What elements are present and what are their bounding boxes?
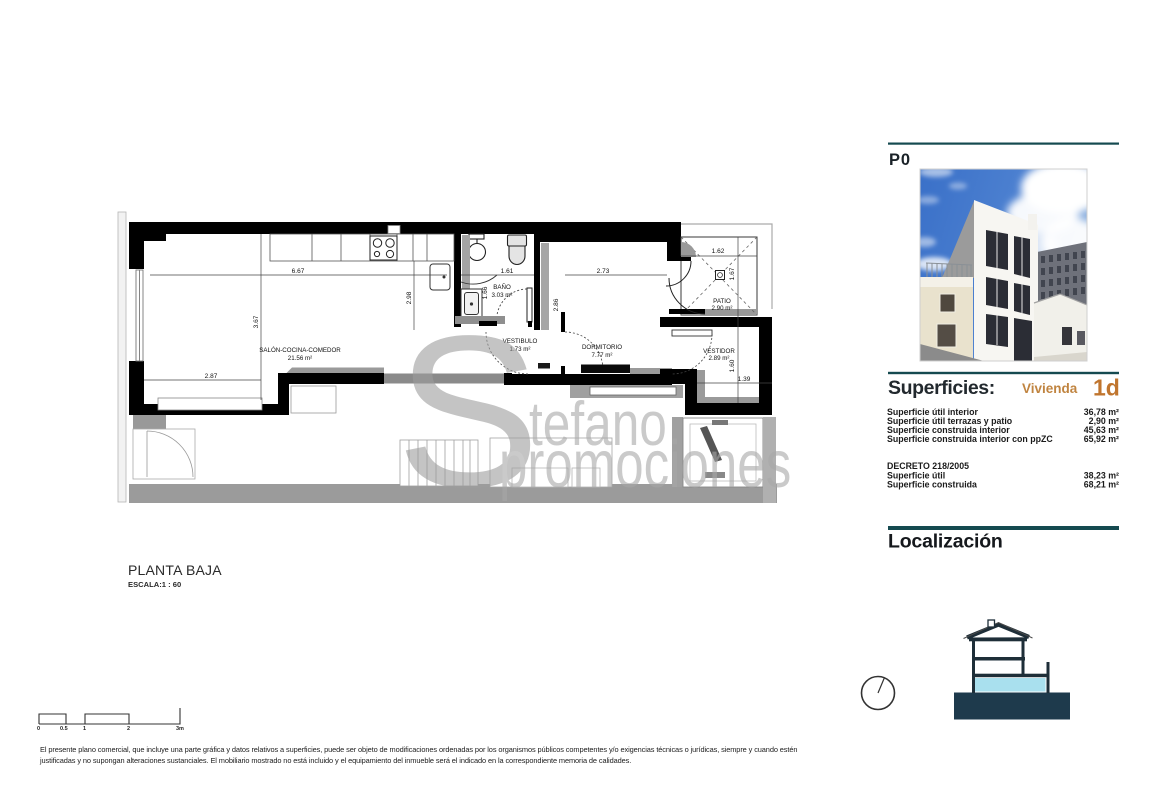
svg-text:2.89 m²: 2.89 m²: [709, 355, 730, 362]
svg-text:promociones: promociones: [499, 426, 791, 501]
svg-text:SALÓN-COCINA-COMEDOR: SALÓN-COCINA-COMEDOR: [259, 347, 341, 354]
svg-text:1.67: 1.67: [729, 267, 736, 280]
svg-text:3m: 3m: [176, 726, 184, 732]
svg-text:1d: 1d: [1093, 375, 1120, 401]
svg-text:2.87: 2.87: [205, 373, 218, 380]
svg-text:Superficie construida interior: Superficie construida interior con ppZC: [887, 434, 1053, 444]
svg-text:ESCALA:1 : 60: ESCALA:1 : 60: [128, 580, 181, 589]
svg-text:DORMITORIO: DORMITORIO: [582, 344, 622, 351]
svg-text:2.73: 2.73: [597, 268, 610, 275]
svg-text:7.77 m²: 7.77 m²: [592, 352, 613, 359]
svg-text:PATIO: PATIO: [713, 298, 731, 305]
svg-text:1.62: 1.62: [712, 248, 725, 255]
svg-text:0: 0: [37, 726, 40, 732]
svg-text:68,21 m²: 68,21 m²: [1084, 480, 1119, 490]
svg-text:2: 2: [127, 726, 130, 732]
svg-text:1.60: 1.60: [729, 359, 736, 372]
svg-text:1.61: 1.61: [501, 268, 514, 275]
svg-text:1.39: 1.39: [738, 376, 751, 383]
svg-text:1: 1: [83, 726, 86, 732]
svg-text:2.86: 2.86: [553, 298, 560, 311]
svg-text:65,92 m²: 65,92 m²: [1084, 434, 1119, 444]
svg-text:21.56 m²: 21.56 m²: [288, 355, 312, 362]
svg-text:2.90 m²: 2.90 m²: [712, 305, 733, 312]
svg-text:P0: P0: [889, 151, 911, 169]
svg-text:Superficie construida: Superficie construida: [887, 480, 977, 490]
svg-text:PLANTA BAJA: PLANTA BAJA: [128, 562, 222, 578]
svg-text:Localización: Localización: [888, 531, 1003, 553]
svg-text:El presente plano comercial, q: El presente plano comercial, que incluye…: [40, 745, 797, 754]
svg-text:Superficies:: Superficies:: [888, 377, 995, 399]
svg-text:VESTIDOR: VESTIDOR: [703, 348, 735, 355]
svg-text:3.67: 3.67: [253, 315, 260, 328]
svg-text:6.67: 6.67: [292, 268, 305, 275]
svg-text:DECRETO 218/2005: DECRETO 218/2005: [887, 461, 969, 471]
svg-text:justificadas y no supongan alt: justificadas y no supongan alteraciones …: [39, 756, 631, 765]
svg-text:Vivienda: Vivienda: [1022, 381, 1078, 396]
svg-text:0.5: 0.5: [60, 726, 68, 732]
